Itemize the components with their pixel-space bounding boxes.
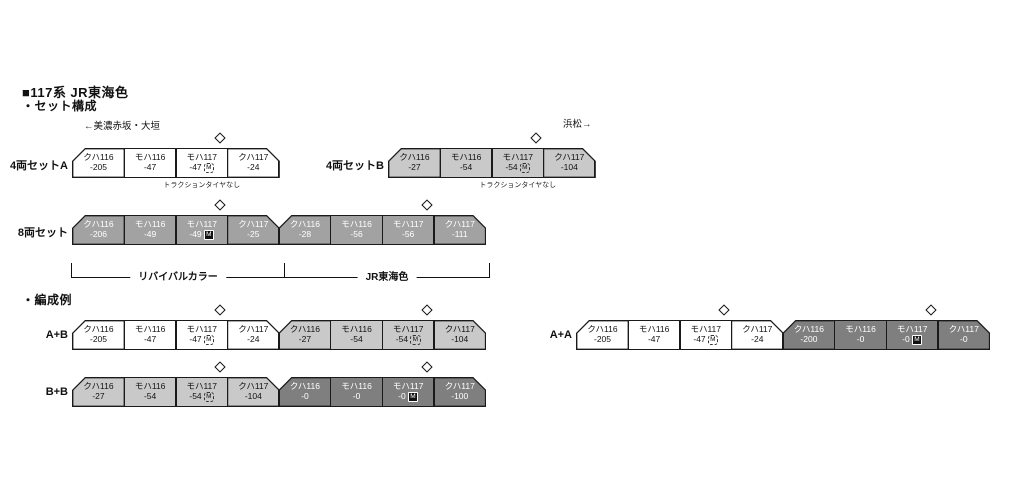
- bracket-tick-middle: [284, 263, 285, 278]
- car-body: モハ116-54: [125, 378, 175, 405]
- motor-badge: M: [708, 335, 718, 346]
- car: クハ116-28＞(消灯スイッチ付): [278, 215, 331, 245]
- car-number-line: -24: [247, 335, 259, 345]
- car-number-line: -205: [90, 163, 107, 173]
- car-body: クハ116-27: [280, 321, 330, 348]
- direction-label-right: 浜松→: [563, 116, 592, 130]
- train-set-label-set-8: 8両セット: [18, 224, 68, 240]
- car: クハ117-104: [433, 320, 486, 350]
- car-body: モハ116-47: [629, 321, 679, 348]
- car-number: -27: [92, 392, 104, 402]
- car: モハ116-56: [330, 215, 383, 245]
- car: モハ117-56: [382, 215, 435, 245]
- pantograph-icon: [215, 304, 226, 315]
- car-number: -24: [247, 335, 259, 345]
- car-body: クハ117-104: [435, 321, 485, 348]
- car-number: -0: [398, 392, 406, 402]
- car-number: -0: [857, 335, 865, 345]
- pantograph-icon: [421, 361, 432, 372]
- car: クハ117-104: [227, 377, 280, 407]
- diagram-page: ■117系 JR東海色 ・セット構成 ←美濃赤坂・大垣 浜松→ 4両セットAクハ…: [0, 0, 1020, 500]
- car-number: -206: [90, 230, 107, 240]
- pantograph-icon: [925, 304, 936, 315]
- car-number: -205: [90, 163, 107, 173]
- car-number: -47: [693, 335, 705, 345]
- section-formation-examples: ・編成例: [22, 291, 72, 308]
- train-row-set-4a: 4両セットAクハ116-205＞(消灯スイッチ付)モハ116-47モハ117-4…: [72, 148, 280, 178]
- car-body: モハ117-0M: [383, 378, 433, 405]
- car-number: -47: [189, 335, 201, 345]
- car: モハ117-47Mトラクションタイヤなし: [175, 148, 228, 178]
- car-body: モハ116-47: [125, 321, 175, 348]
- car-note: ＞(消灯スイッチ付): [389, 180, 450, 190]
- car-number: -56: [350, 230, 362, 240]
- car-number-line: -100: [451, 392, 468, 402]
- car-number: -27: [299, 335, 311, 345]
- car-number: -111: [452, 230, 468, 240]
- motor-badge: M: [204, 163, 214, 174]
- car-number-line: -47: [648, 335, 660, 345]
- car-body: クハ116-27: [73, 378, 123, 405]
- car-number-line: -111: [452, 230, 468, 240]
- pantograph-icon: [215, 361, 226, 372]
- train-row-example-a-b: A+Bクハ116-205モハ116-47モハ117-47Mクハ117-24クハ1…: [72, 320, 486, 350]
- car-number-line: -54M: [189, 392, 214, 403]
- pantograph-icon: [421, 304, 432, 315]
- car-number-line: -49: [144, 230, 156, 240]
- car: クハ116-206＞(消灯スイッチ付): [72, 215, 125, 245]
- car-body: クハ116-28: [280, 216, 330, 243]
- motor-badge: M: [520, 163, 530, 174]
- car-number-line: -28: [299, 230, 311, 240]
- pantograph-icon: [719, 304, 730, 315]
- car: クハ117-0: [937, 320, 990, 350]
- car-number: -205: [90, 335, 107, 345]
- car-body: モハ117-54M: [177, 378, 227, 405]
- car-number: -54: [460, 163, 472, 173]
- car: クハ117-24: [731, 320, 784, 350]
- car-number: -0: [353, 392, 361, 402]
- car: モハ116-0: [330, 377, 383, 407]
- car-number: -24: [247, 163, 259, 173]
- train-row-set-4b: 4両セットBクハ116-27＞(消灯スイッチ付)モハ116-54モハ117-54…: [388, 148, 596, 178]
- car-body: モハ116-54: [441, 149, 491, 176]
- train-row-example-b-b: B+Bクハ116-27モハ116-54モハ117-54Mクハ117-104クハ1…: [72, 377, 486, 407]
- car-body: クハ116-206: [73, 216, 123, 243]
- car-body: モハ116-56: [331, 216, 381, 243]
- car-number: -0: [960, 335, 968, 345]
- car-number-line: -27: [92, 392, 104, 402]
- car: クハ116-27: [278, 320, 331, 350]
- car-number-line: -206: [90, 230, 107, 240]
- car: クハ116-27: [72, 377, 125, 407]
- car-number-line: -54: [460, 163, 472, 173]
- car: クハ116-205: [576, 320, 629, 350]
- car-body: クハ117-24: [228, 149, 278, 176]
- pantograph-icon: [421, 199, 432, 210]
- car-number-line: -47M: [189, 163, 214, 174]
- car: クハ116-205＞(消灯スイッチ付): [72, 148, 125, 178]
- car-body: モハ116-47: [125, 149, 175, 176]
- car-number-line: -104: [245, 392, 262, 402]
- car-number: -49: [144, 230, 156, 240]
- car-number-line: -0M: [398, 392, 418, 403]
- car-number-line: -47M: [189, 335, 214, 346]
- car-body: モハ117-47M: [681, 321, 731, 348]
- car-number-line: -0: [353, 392, 361, 402]
- car-number-line: -49M: [189, 230, 214, 241]
- car-body: モハ117-56: [383, 216, 433, 243]
- car-body: モハ116-49: [125, 216, 175, 243]
- car: クハ116-27＞(消灯スイッチ付): [388, 148, 441, 178]
- car-body: モハ117-0M: [887, 321, 937, 348]
- car: クハ117-111(消灯スイッチ付)＜: [433, 215, 486, 245]
- car-number: -54: [350, 335, 362, 345]
- car-number-line: -200: [800, 335, 817, 345]
- car: クハ117-24(消灯スイッチ付)＜: [227, 148, 280, 178]
- car-body: クハ116-205: [73, 321, 123, 348]
- motor-badge: M: [204, 392, 214, 403]
- car-body: モハ117-47M: [177, 149, 227, 176]
- car-number: -47: [648, 335, 660, 345]
- train-set-label-set-4b: 4両セットB: [326, 157, 384, 173]
- car-number-line: -54M: [396, 335, 421, 346]
- pantograph-icon: [215, 199, 226, 210]
- train-set-label-set-4a: 4両セットA: [10, 157, 68, 173]
- car-body: クハ117-104: [544, 149, 594, 176]
- car-body: モハ116-0: [835, 321, 885, 348]
- car-number: -56: [402, 230, 414, 240]
- car-body: クハ117-0: [939, 321, 989, 348]
- car-body: クハ116-205: [577, 321, 627, 348]
- car: クハ116-205: [72, 320, 125, 350]
- car-number: -47: [144, 163, 156, 173]
- car-number-line: -54: [350, 335, 362, 345]
- car: クハ117-25(消灯スイッチ付)＜: [227, 215, 280, 245]
- train-set-label-example-a-a: A+A: [550, 329, 572, 341]
- car-number-line: -24: [247, 163, 259, 173]
- car-body: クハ117-24: [732, 321, 782, 348]
- car: モハ116-47: [124, 320, 177, 350]
- car-body: クハ116-200: [784, 321, 834, 348]
- car-body: モハ116-54: [331, 321, 381, 348]
- car-number: -54: [144, 392, 156, 402]
- motor-badge: M: [912, 335, 922, 346]
- car: クハ117-104(消灯スイッチ付)＜: [543, 148, 596, 178]
- car-number-line: -47: [144, 163, 156, 173]
- car: モハ116-49: [124, 215, 177, 245]
- car: モハ117-54M: [175, 377, 228, 407]
- car: モハ117-0M: [382, 377, 435, 407]
- car-note: トラクションタイヤなし: [479, 180, 556, 190]
- car-body: クハ117-100: [435, 378, 485, 405]
- car: モハ116-47: [124, 148, 177, 178]
- car-number-line: -47: [144, 335, 156, 345]
- car-note: ＞(消灯スイッチ付): [73, 180, 134, 190]
- car: クハ116-0: [278, 377, 331, 407]
- car-note: トラクションタイヤなし: [163, 180, 240, 190]
- car-body: モハ117-49M: [177, 216, 227, 243]
- car-body: クハ116-27: [389, 149, 439, 176]
- train-row-set-8: 8両セットクハ116-206＞(消灯スイッチ付)モハ116-49モハ117-49…: [72, 215, 486, 245]
- car-number-line: -0M: [902, 335, 922, 346]
- car: モハ116-0: [834, 320, 887, 350]
- car-number-line: -27: [299, 335, 311, 345]
- car: モハ116-47: [628, 320, 681, 350]
- car: モハ117-54Mトラクションタイヤなし: [491, 148, 544, 178]
- section-set-composition: ・セット構成: [22, 97, 97, 114]
- car-number-line: -104: [451, 335, 468, 345]
- car: モハ116-54: [124, 377, 177, 407]
- train-row-example-a-a: A+Aクハ116-205モハ116-47モハ117-47Mクハ117-24クハ1…: [576, 320, 990, 350]
- car-body: モハ116-0: [331, 378, 381, 405]
- car-number: -100: [451, 392, 468, 402]
- car-body: クハ116-0: [280, 378, 330, 405]
- car-number-line: -0: [301, 392, 309, 402]
- car-number: -54: [189, 392, 201, 402]
- car-number-line: -47M: [693, 335, 718, 346]
- car-number: -0: [301, 392, 309, 402]
- car: モハ116-54: [330, 320, 383, 350]
- car-body: クハ117-104: [228, 378, 278, 405]
- motor-badge: M: [410, 335, 420, 346]
- car-number-line: -25: [247, 230, 259, 240]
- motor-badge: M: [204, 335, 214, 346]
- car-number-line: -27: [408, 163, 420, 173]
- car-number-line: -0: [960, 335, 968, 345]
- car-number-line: -54: [144, 392, 156, 402]
- car: モハ117-49M: [175, 215, 228, 245]
- car: モハ117-54M: [382, 320, 435, 350]
- car-number: -24: [751, 335, 763, 345]
- car-number-line: -56: [402, 230, 414, 240]
- color-scheme-bracket: リバイバルカラー JR東海色: [71, 252, 490, 278]
- car-number-line: -24: [751, 335, 763, 345]
- car-body: クハ117-111: [435, 216, 485, 243]
- car-body: クハ117-25: [228, 216, 278, 243]
- car-number-line: -54M: [505, 163, 530, 174]
- car-body: クハ116-205: [73, 149, 123, 176]
- car-number: -54: [396, 335, 408, 345]
- car-number: -200: [800, 335, 817, 345]
- car-number: -47: [189, 163, 201, 173]
- motor-badge: M: [408, 392, 418, 403]
- car-body: モハ117-47M: [177, 321, 227, 348]
- car: モハ117-0M: [886, 320, 939, 350]
- car-number: -27: [408, 163, 420, 173]
- car: モハ117-47M: [175, 320, 228, 350]
- car-number: -28: [299, 230, 311, 240]
- car: モハ116-54: [440, 148, 493, 178]
- train-set-label-example-b-b: B+B: [46, 386, 68, 398]
- car-number: -104: [451, 335, 468, 345]
- car-number-line: -56: [350, 230, 362, 240]
- car-number: -47: [144, 335, 156, 345]
- car-number-line: -205: [594, 335, 611, 345]
- train-set-label-example-a-b: A+B: [46, 329, 68, 341]
- car-number: -54: [505, 163, 517, 173]
- car-number-line: -205: [90, 335, 107, 345]
- car-number: -0: [902, 335, 910, 345]
- car-number-line: -104: [561, 163, 578, 173]
- bracket-label-revival-color: リバイバルカラー: [130, 268, 226, 283]
- bracket-label-jr-tokai-color: JR東海色: [358, 268, 417, 283]
- car: モハ117-47M: [679, 320, 732, 350]
- car-number: -205: [594, 335, 611, 345]
- motor-badge: M: [204, 230, 214, 241]
- car-body: モハ117-54M: [493, 149, 543, 176]
- pantograph-icon: [531, 132, 542, 143]
- car-body: クハ117-24: [228, 321, 278, 348]
- car-number: -104: [561, 163, 578, 173]
- pantograph-icon: [215, 132, 226, 143]
- car-body: モハ117-54M: [383, 321, 433, 348]
- car-number-line: -0: [857, 335, 865, 345]
- car: クハ117-100: [433, 377, 486, 407]
- direction-label-left: ←美濃赤坂・大垣: [84, 118, 160, 132]
- car-number: -25: [247, 230, 259, 240]
- car: クハ116-200: [782, 320, 835, 350]
- bracket-tick-right: [489, 263, 490, 278]
- bracket-tick-left: [71, 263, 72, 278]
- car-number: -104: [245, 392, 262, 402]
- car-number: -49: [189, 230, 201, 240]
- car: クハ117-24: [227, 320, 280, 350]
